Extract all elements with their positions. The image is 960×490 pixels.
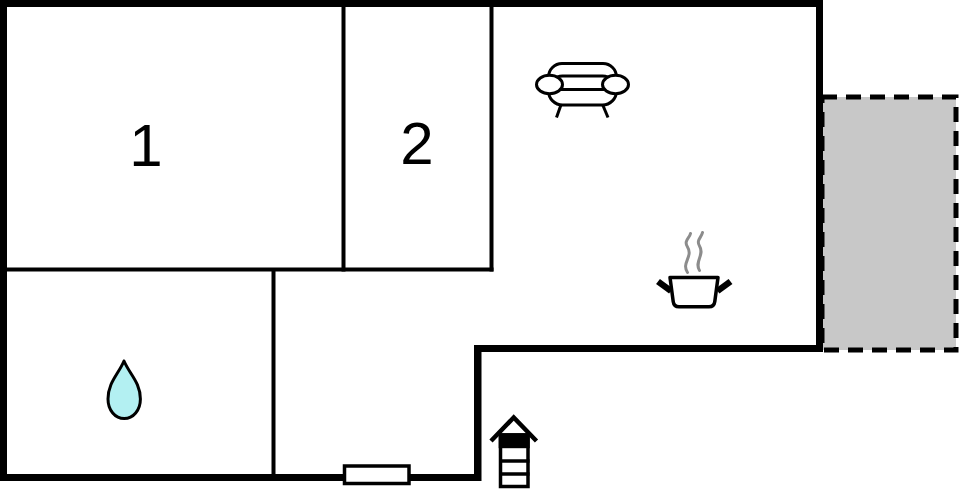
cooking-area bbox=[658, 233, 731, 307]
window-marker bbox=[345, 466, 410, 484]
sofa-armrest-left bbox=[537, 75, 563, 94]
steam-wave-right bbox=[698, 233, 703, 271]
floor-plan: 1 2 bbox=[0, 0, 960, 490]
interior-walls bbox=[0, 7, 494, 474]
steam-wave-left bbox=[686, 234, 691, 273]
bedroom-1-label: 1 bbox=[129, 112, 162, 179]
wall-bedrooms-south bbox=[0, 268, 494, 272]
water-drop-icon bbox=[108, 361, 140, 419]
ladder-top-segment bbox=[499, 433, 530, 448]
sofa-armrest-right bbox=[603, 75, 629, 94]
pot-handle-right bbox=[718, 282, 731, 292]
wall-bedroom2-living bbox=[490, 7, 494, 272]
ladder-icon bbox=[491, 418, 537, 487]
steam-icon bbox=[686, 233, 703, 273]
wall-right bbox=[816, 0, 823, 352]
wall-left bbox=[0, 0, 7, 481]
terrace-area bbox=[822, 97, 956, 350]
wall-bathroom-hall bbox=[272, 271, 276, 474]
cooking-pot-icon bbox=[670, 278, 718, 307]
wall-top bbox=[0, 0, 823, 7]
wall-hall-east bbox=[474, 345, 482, 481]
wall-kitchen-south bbox=[474, 345, 823, 352]
wall-bedroom1-bedroom2 bbox=[342, 7, 346, 272]
sofa-icon bbox=[537, 64, 629, 118]
bedroom-2-label: 2 bbox=[400, 110, 433, 177]
